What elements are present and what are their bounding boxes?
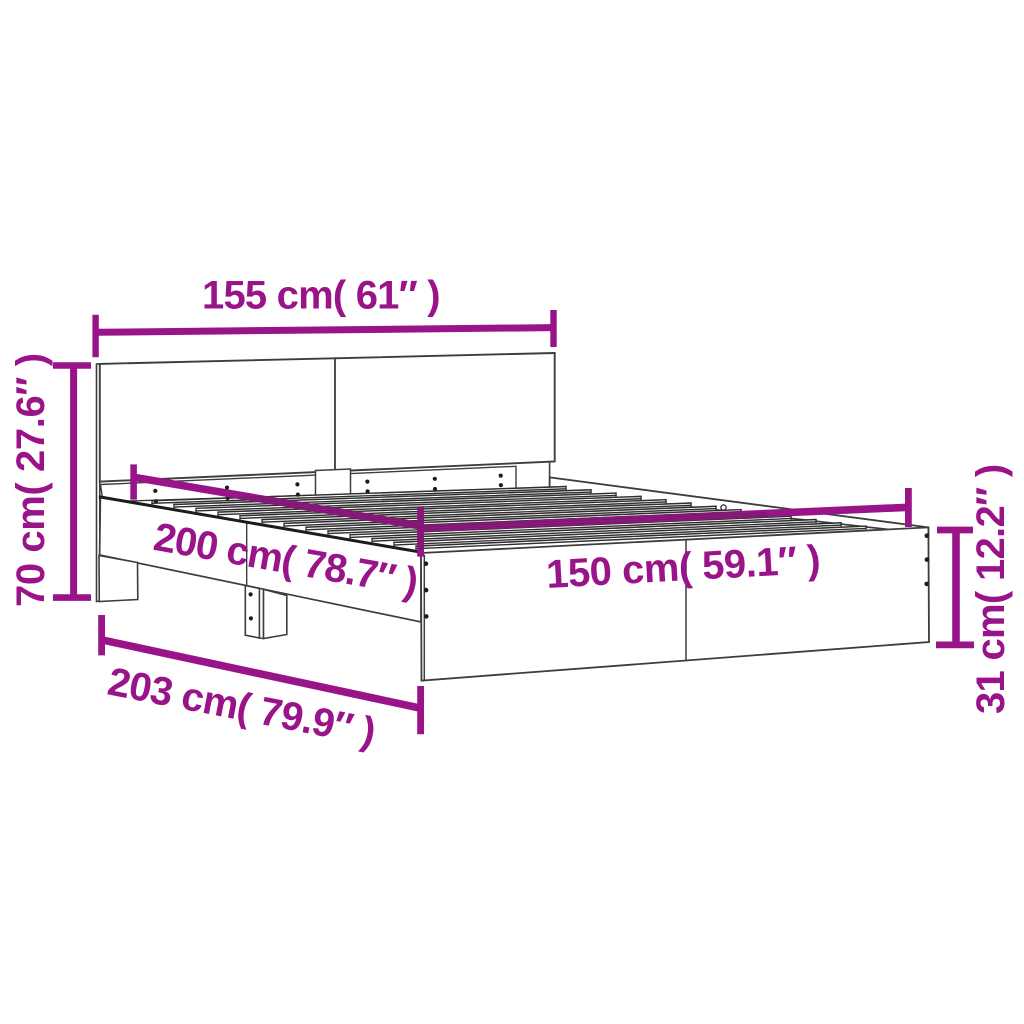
svg-text:70 cm( 27.6″ ): 70 cm( 27.6″ ) [9,353,53,607]
svg-text:31 cm( 12.2″ ): 31 cm( 12.2″ ) [969,465,1013,715]
svg-text:155 cm( 61″ ): 155 cm( 61″ ) [202,274,440,318]
